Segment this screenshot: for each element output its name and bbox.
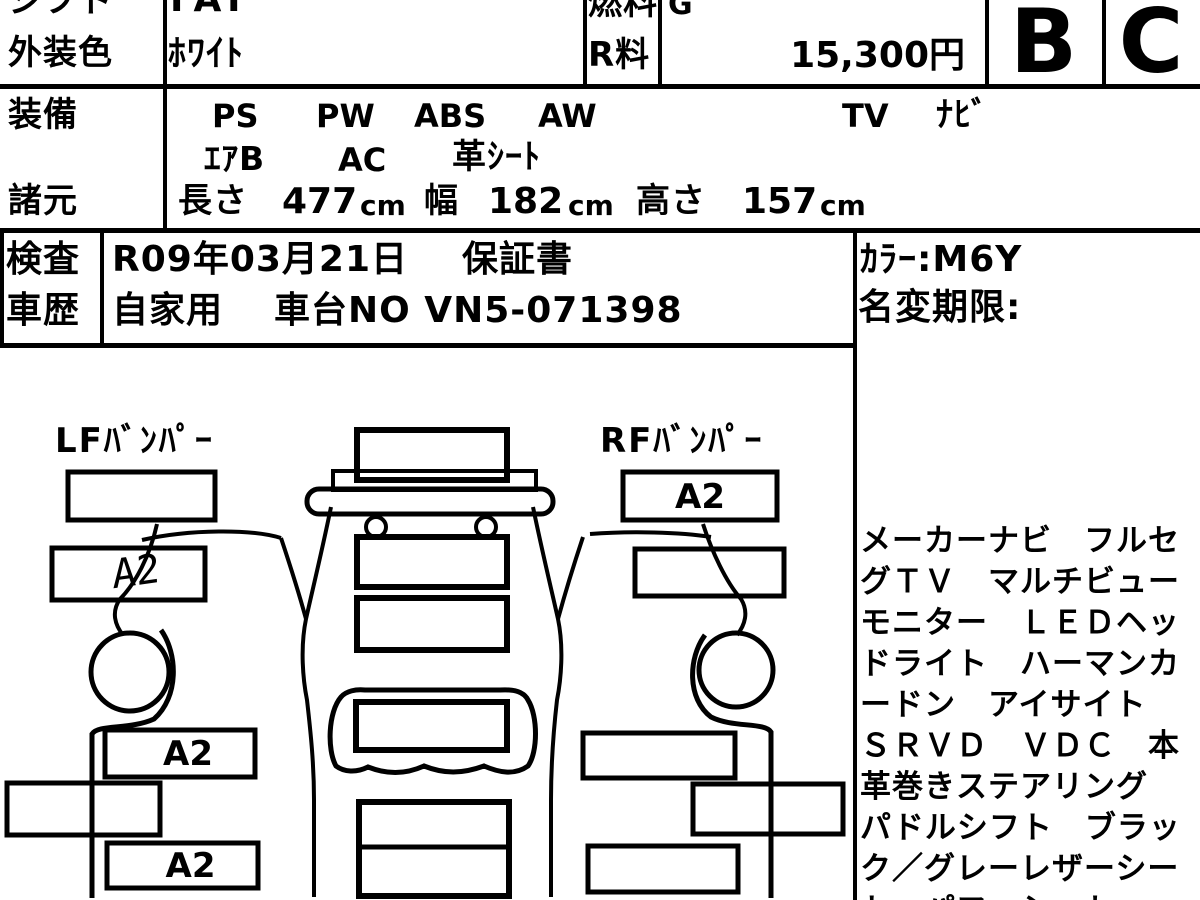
length-label: 長さ [178, 184, 248, 218]
auction-sheet: シフト FAT 燃料 G 外装色 ﾎﾜｲﾄ R料 15,300円 B C 装備 … [0, 0, 1200, 900]
notes-line: ＳＲＶＤ ＶＤＣ 本 [860, 731, 1180, 762]
equipment-item-ac: AC [338, 144, 386, 176]
right-door-mark-box-2 [588, 846, 738, 892]
interior-grade-badge: C [1102, 0, 1200, 86]
right-door-mark-box-1 [583, 733, 735, 778]
usage-type: 自家用 [112, 293, 223, 329]
notes-line: ドライト ハーマンカ [860, 649, 1180, 680]
lf-bumper-mark-box [68, 472, 215, 520]
left-front-wheel [91, 633, 169, 711]
hood-panel-2 [357, 598, 507, 650]
rf-fender-mark-box [635, 549, 784, 596]
exterior-color-label: 外装色 [8, 36, 113, 70]
right-front-wheel [699, 633, 773, 707]
notes-line: ードン アイサイト [860, 690, 1146, 721]
lf-fender-mark: A2 [112, 549, 161, 596]
length-unit: cm [360, 192, 406, 220]
notes-line: モニター ＬＥＤヘッ [860, 608, 1180, 639]
notes-line: ク／グレーレザーシー [860, 854, 1179, 885]
divider [0, 343, 857, 348]
fuel-value: G [668, 0, 693, 20]
warranty-note: 保証書 [462, 242, 573, 278]
left-door-mark-1: A2 [105, 737, 255, 771]
divider [100, 230, 104, 345]
notes-line: パドルシフト ブラッ [860, 813, 1181, 844]
inspection-label: 検査 [6, 242, 80, 278]
height-label: 高さ [636, 184, 706, 218]
recycle-fee-label: R料 [588, 38, 650, 72]
equipment-item-pw: PW [316, 100, 375, 132]
divider [0, 228, 1200, 233]
front-bumper-bar [307, 489, 553, 514]
right-wheel-arch [693, 635, 771, 898]
right-fender-inner [558, 537, 583, 619]
right-fender-outer [703, 524, 745, 635]
width-unit: cm [568, 192, 614, 220]
inspection-date: R09年03月21日 [112, 242, 408, 278]
length-value: 477 [282, 184, 357, 220]
notes-line: メーカーナビ フルセ [860, 526, 1180, 557]
shift-label: シフト [8, 0, 113, 18]
equipment-label: 装備 [8, 98, 78, 132]
right-body-line [533, 507, 561, 897]
notes-line: グＴＶ マルチビュー [860, 567, 1180, 598]
notes-line: 革巻きステアリング [860, 772, 1148, 803]
exterior-color-value: ﾎﾜｲﾄ [168, 36, 244, 72]
name-change-deadline: 名変期限: [858, 290, 1021, 326]
color-code: ｶﾗｰ:M6Y [860, 242, 1022, 278]
recycle-fee-value: 15,300円 [660, 38, 965, 74]
specs-label: 諸元 [8, 184, 78, 218]
exterior-grade-badge: B [985, 0, 1102, 86]
rf-bumper-label: RFﾊﾞﾝﾊﾟｰ [600, 424, 763, 458]
car-damage-diagram [0, 400, 860, 900]
left-fender-inner [281, 538, 306, 619]
notes-line: ト パワーシート [860, 895, 1115, 900]
equipment-item-abs: ABS [414, 100, 486, 132]
width-label: 幅 [424, 184, 459, 218]
rf-bumper-mark: A2 [623, 480, 777, 514]
equipment-item-leather-seat: 革ｼｰﾄ [452, 140, 541, 174]
hood-panel-1 [357, 537, 507, 587]
shift-value: FAT [170, 0, 249, 18]
equipment-item-tv: TV [842, 100, 889, 132]
equipment-item-navi: ﾅﾋﾞ [936, 98, 989, 132]
history-label: 車歴 [6, 293, 80, 329]
left-fender-top [142, 531, 281, 540]
equipment-item-aw: AW [538, 100, 597, 132]
divider [163, 0, 167, 228]
right-side-mark-box [693, 784, 843, 834]
left-side-mark-box [7, 783, 160, 835]
windshield-box [356, 702, 507, 750]
right-fender-top [590, 532, 711, 537]
left-door-mark-2: A2 [107, 849, 258, 883]
equipment-item-airbag: ｴｱB [204, 142, 265, 175]
divider [0, 230, 4, 345]
left-body-line [303, 507, 331, 897]
height-unit: cm [820, 192, 866, 220]
height-value: 157 [742, 184, 817, 220]
equipment-item-ps: PS [212, 100, 259, 132]
width-value: 182 [488, 184, 563, 220]
fuel-label: 燃料 [588, 0, 658, 20]
lf-bumper-label: LFﾊﾞﾝﾊﾟｰ [55, 424, 214, 458]
divider [583, 0, 587, 84]
chassis-number: 車台NO VN5-071398 [274, 293, 683, 329]
